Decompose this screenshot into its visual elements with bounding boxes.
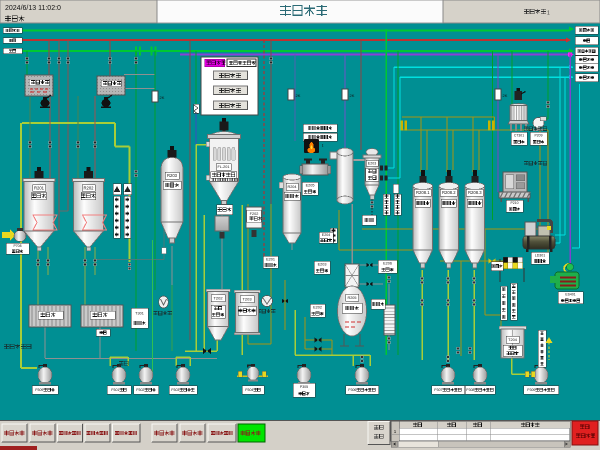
svg-text:P307: P307 xyxy=(434,388,442,392)
svg-text:E206: E206 xyxy=(383,262,392,266)
svg-text:R205: R205 xyxy=(347,296,356,300)
svg-text:F202: F202 xyxy=(250,212,259,216)
svg-text:R202: R202 xyxy=(83,185,94,190)
svg-text:T301: T301 xyxy=(135,311,144,315)
svg-text:E203: E203 xyxy=(368,161,376,165)
svg-text:P210: P210 xyxy=(511,201,519,205)
svg-text:LD301: LD301 xyxy=(535,253,546,257)
svg-text:E202: E202 xyxy=(313,306,322,310)
svg-text:ES401: ES401 xyxy=(565,293,575,297)
svg-text:P301: P301 xyxy=(111,388,119,392)
svg-text:2K: 2K xyxy=(503,93,508,98)
svg-text:2K: 2K xyxy=(296,93,301,98)
svg-text:E205: E205 xyxy=(306,184,315,188)
svg-text:T202: T202 xyxy=(213,295,223,300)
svg-text:P309: P309 xyxy=(527,388,535,392)
svg-text:P305: P305 xyxy=(300,385,308,389)
svg-text:1: 1 xyxy=(547,11,550,17)
svg-text:E204: E204 xyxy=(322,233,330,237)
svg-text:P309: P309 xyxy=(35,388,43,392)
svg-text:P302: P302 xyxy=(136,388,144,392)
svg-text:T203: T203 xyxy=(242,296,252,301)
svg-text:FL-201: FL-201 xyxy=(217,165,229,169)
svg-text:P306: P306 xyxy=(348,388,356,392)
svg-text:P209: P209 xyxy=(535,134,543,138)
svg-text:R208.1: R208.1 xyxy=(416,190,430,195)
svg-text:R203: R203 xyxy=(167,173,178,178)
svg-text:R204: R204 xyxy=(287,185,296,189)
svg-text:R201: R201 xyxy=(34,185,45,190)
svg-text:2024/6/13 11:02:0: 2024/6/13 11:02:0 xyxy=(5,5,61,12)
svg-text:E201: E201 xyxy=(266,257,275,261)
svg-text:R208.2: R208.2 xyxy=(442,190,456,195)
svg-text:CT301: CT301 xyxy=(514,134,524,138)
svg-text:E203: E203 xyxy=(318,263,327,267)
svg-text:2K: 2K xyxy=(350,93,355,98)
svg-text:P303: P303 xyxy=(171,388,179,392)
svg-text:P708: P708 xyxy=(14,244,22,248)
svg-text:R208.3: R208.3 xyxy=(468,190,482,195)
svg-text:2K: 2K xyxy=(160,95,165,100)
svg-text:T204: T204 xyxy=(508,338,517,342)
svg-text:P304: P304 xyxy=(245,388,253,392)
svg-text:P308: P308 xyxy=(466,388,474,392)
